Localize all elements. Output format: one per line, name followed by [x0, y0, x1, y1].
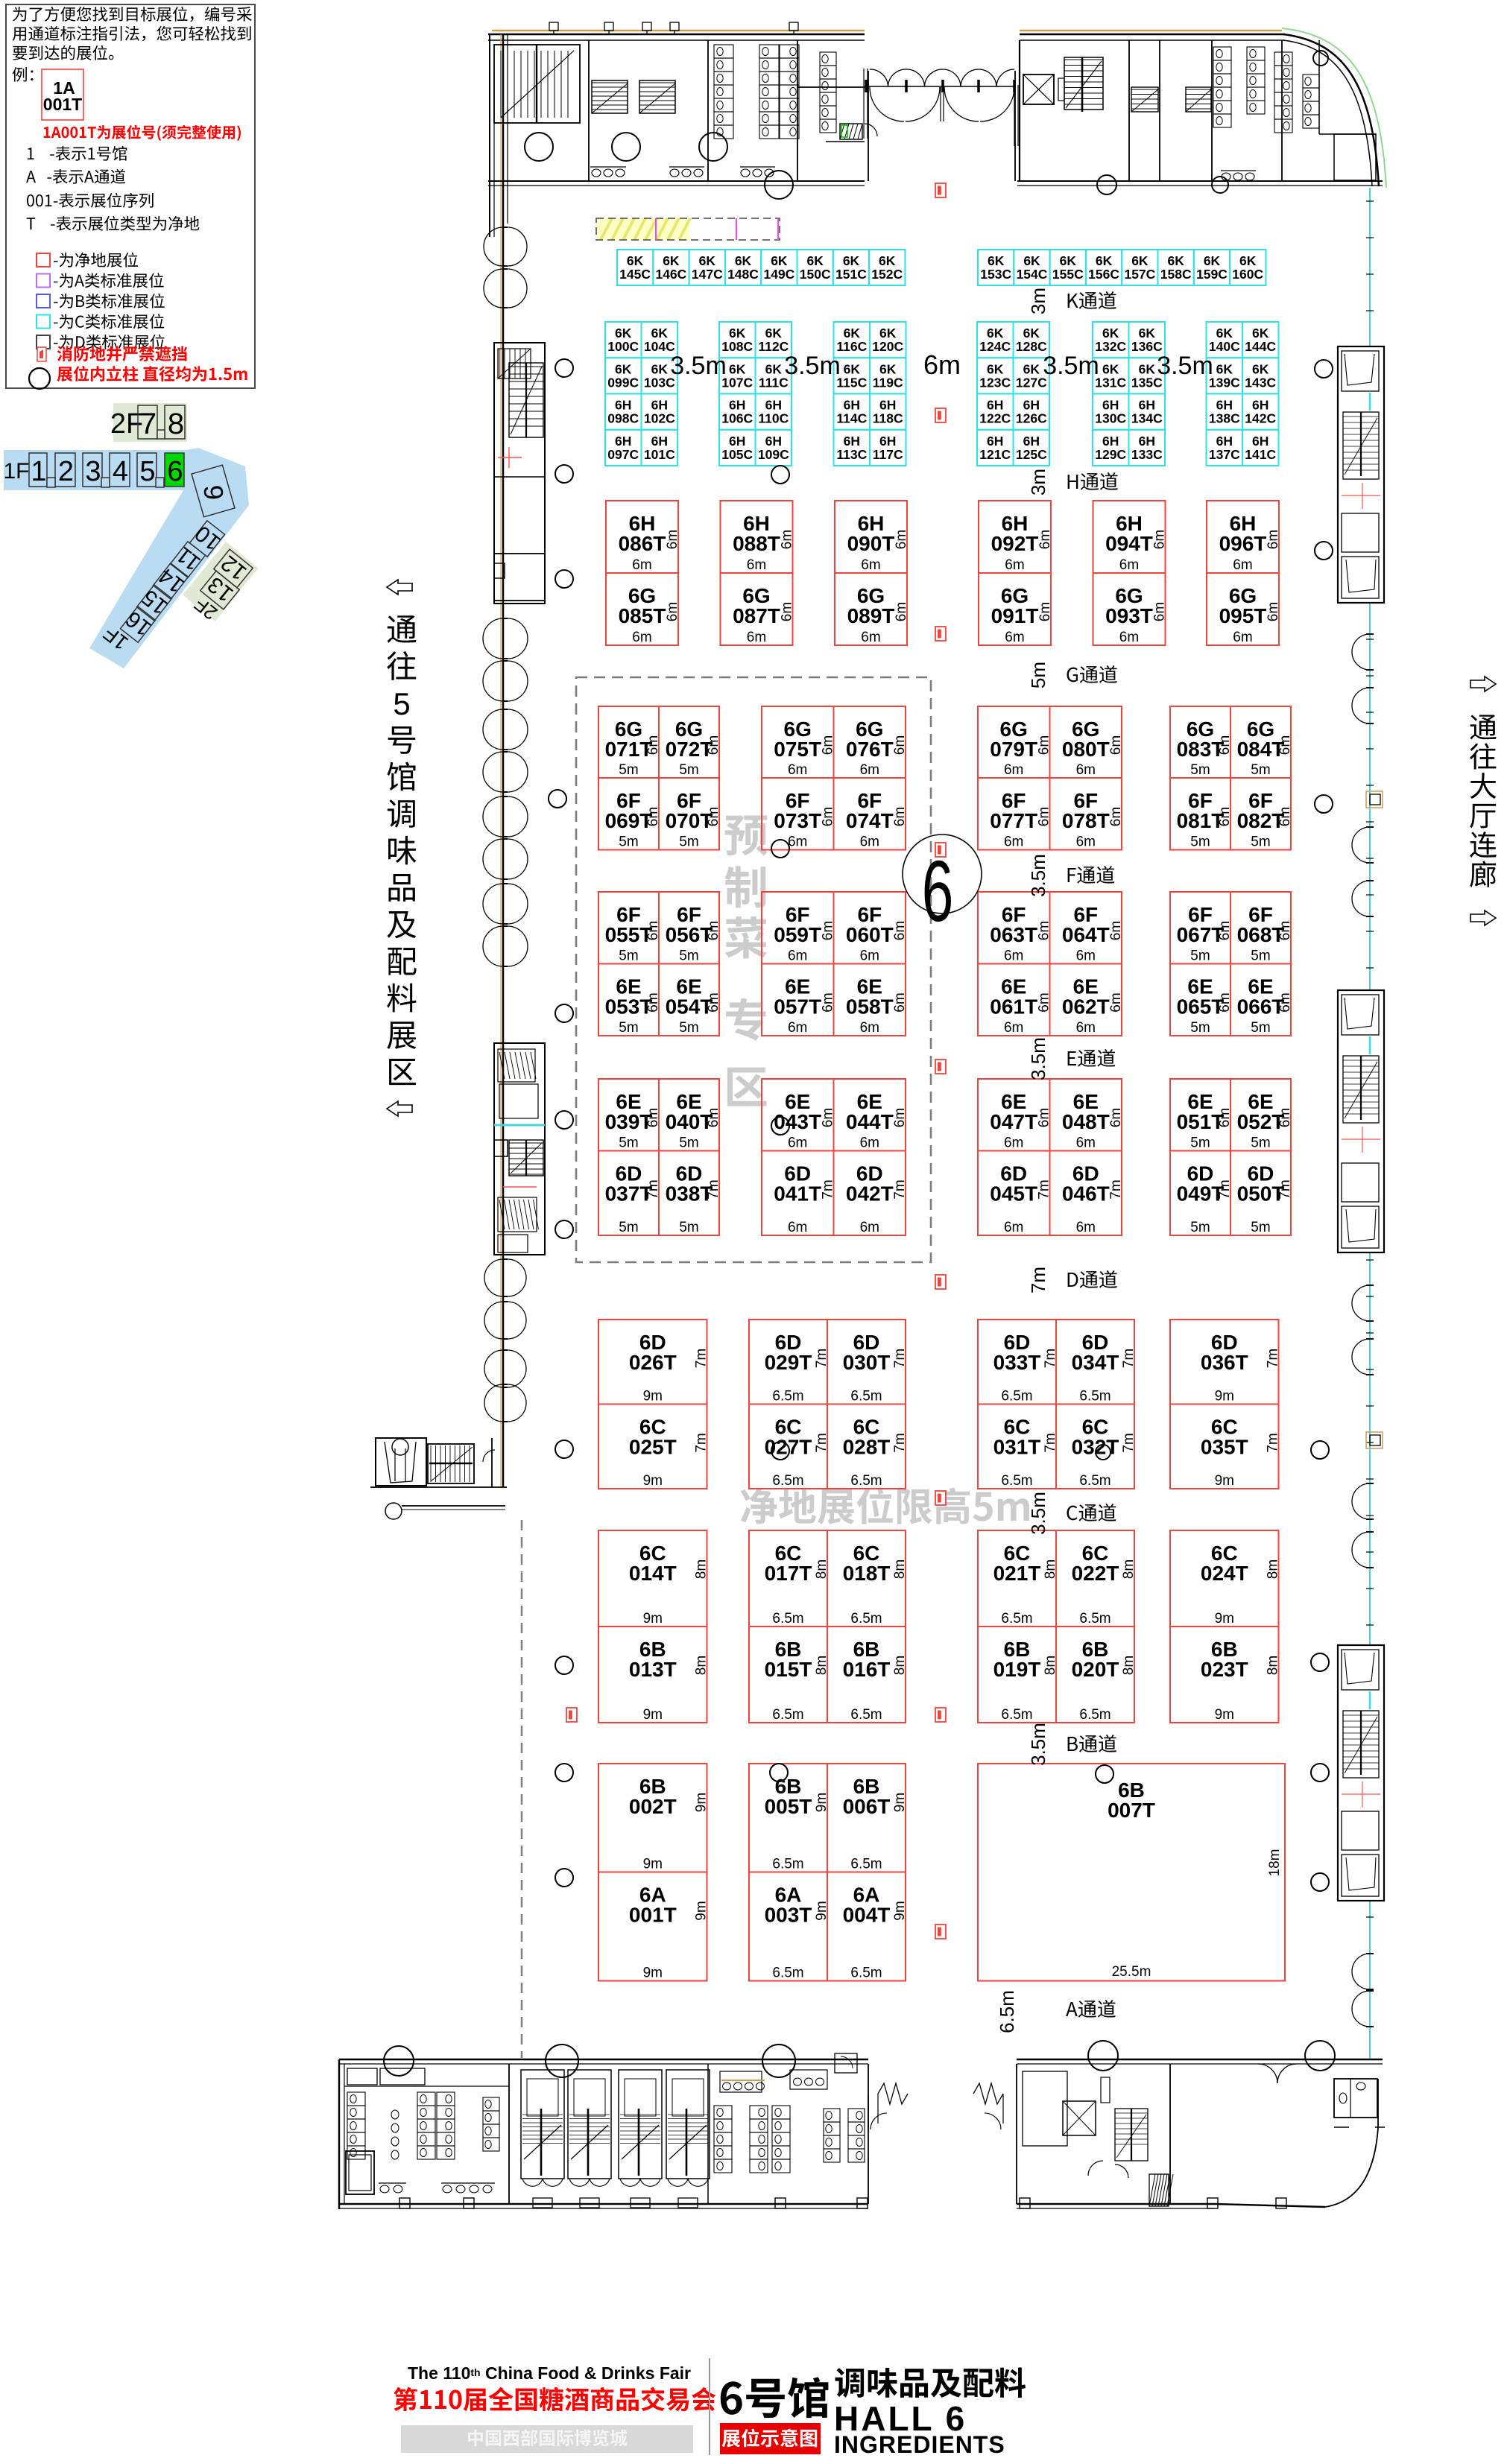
svg-text:092T: 092T	[991, 532, 1039, 555]
svg-text:9m: 9m	[643, 1707, 663, 1723]
svg-text:090T: 090T	[847, 532, 895, 555]
svg-text:6H: 6H	[729, 398, 745, 413]
svg-text:119C: 119C	[873, 375, 903, 390]
svg-text:1F: 1F	[3, 459, 29, 484]
svg-text:102C: 102C	[644, 411, 675, 426]
svg-text:The 110th China Food & Drinks: The 110th China Food & Drinks Fair	[408, 2363, 691, 2383]
svg-text:6m: 6m	[1119, 557, 1139, 573]
svg-text:9: 9	[198, 484, 230, 501]
svg-text:132C: 132C	[1095, 339, 1126, 354]
svg-text:5m: 5m	[679, 948, 698, 964]
svg-text:6m: 6m	[892, 992, 908, 1012]
svg-text:5m: 5m	[1190, 1220, 1210, 1235]
svg-text:5m: 5m	[1251, 762, 1270, 778]
svg-text:6m: 6m	[1004, 1136, 1023, 1151]
svg-text:6m: 6m	[1119, 630, 1139, 645]
svg-text:6K: 6K	[807, 253, 824, 268]
svg-text:6H: 6H	[879, 434, 896, 449]
svg-text:5m: 5m	[679, 1136, 698, 1151]
svg-text:079T: 079T	[990, 738, 1037, 761]
svg-text:7m: 7m	[1277, 1179, 1293, 1199]
svg-text:6K: 6K	[1252, 326, 1269, 341]
svg-text:5m: 5m	[1251, 948, 1270, 964]
svg-text:3.5m: 3.5m	[1027, 1492, 1049, 1535]
svg-text:6.5m: 6.5m	[772, 1707, 803, 1723]
svg-text:7m: 7m	[1266, 1433, 1281, 1452]
svg-text:6m: 6m	[1037, 530, 1053, 549]
svg-text:149C: 149C	[763, 267, 794, 282]
svg-text:116C: 116C	[836, 339, 867, 354]
svg-text:9m: 9m	[694, 1901, 710, 1920]
svg-text:6m: 6m	[892, 1108, 908, 1127]
svg-text:6K: 6K	[844, 361, 861, 376]
svg-text:6H: 6H	[844, 434, 860, 449]
svg-text:5m: 5m	[679, 762, 698, 778]
svg-text:6m: 6m	[1233, 557, 1252, 573]
svg-text:6m: 6m	[1152, 602, 1168, 621]
svg-text:6H: 6H	[987, 398, 1003, 413]
svg-text:125C: 125C	[1016, 447, 1047, 462]
svg-text:6m: 6m	[780, 530, 795, 549]
svg-text:6m: 6m	[665, 602, 680, 621]
svg-text:145C: 145C	[619, 267, 651, 282]
svg-text:6m: 6m	[788, 1136, 807, 1151]
svg-text:6H: 6H	[1252, 398, 1269, 413]
svg-text:7m: 7m	[892, 1179, 908, 1199]
svg-text:6K: 6K	[1023, 361, 1040, 376]
svg-text:036T: 036T	[1201, 1351, 1248, 1374]
svg-text:086T: 086T	[619, 532, 666, 555]
svg-text:002T: 002T	[629, 1795, 677, 1818]
svg-text:063T: 063T	[990, 923, 1037, 946]
svg-text:5m: 5m	[1190, 834, 1210, 850]
svg-text:156C: 156C	[1088, 267, 1119, 282]
svg-text:3.5m: 3.5m	[784, 352, 841, 380]
svg-text:6m: 6m	[860, 1136, 879, 1151]
svg-text:140C: 140C	[1209, 339, 1240, 354]
svg-text:9m: 9m	[643, 1389, 663, 1404]
svg-text:6.5m: 6.5m	[850, 1966, 882, 1981]
svg-text:6H: 6H	[1139, 434, 1155, 449]
svg-text:18m: 18m	[1267, 1849, 1283, 1877]
svg-text:8m: 8m	[1266, 1559, 1281, 1579]
svg-text:5m: 5m	[1251, 834, 1270, 850]
svg-text:6.5m: 6.5m	[1079, 1389, 1110, 1404]
svg-text:2: 2	[58, 456, 74, 487]
svg-text:6K: 6K	[615, 361, 632, 376]
svg-text:6.5m: 6.5m	[850, 1389, 882, 1404]
svg-text:5m: 5m	[1027, 662, 1049, 688]
svg-text:6m: 6m	[1004, 948, 1023, 964]
svg-text:6m: 6m	[706, 1108, 721, 1127]
svg-text:6m: 6m	[1108, 992, 1124, 1012]
svg-text:087T: 087T	[733, 604, 780, 627]
svg-text:6.5m: 6.5m	[1001, 1389, 1032, 1404]
svg-text:6m: 6m	[788, 948, 807, 964]
svg-text:6m: 6m	[1277, 921, 1293, 940]
svg-text:6m: 6m	[861, 557, 880, 573]
svg-text:3.5m: 3.5m	[1027, 1723, 1049, 1766]
svg-text:8m: 8m	[892, 1656, 908, 1675]
svg-text:100C: 100C	[607, 339, 639, 354]
svg-text:026T: 026T	[629, 1351, 677, 1374]
svg-text:031T: 031T	[993, 1436, 1041, 1459]
svg-text:006T: 006T	[843, 1795, 891, 1818]
svg-text:6m: 6m	[1152, 530, 1168, 549]
svg-text:139C: 139C	[1209, 375, 1240, 390]
svg-text:9m: 9m	[643, 1857, 663, 1872]
svg-text:158C: 158C	[1160, 267, 1192, 282]
svg-text:6K: 6K	[729, 361, 746, 376]
svg-text:076T: 076T	[846, 738, 894, 761]
svg-text:134C: 134C	[1131, 411, 1163, 426]
svg-text:6K: 6K	[1204, 253, 1221, 268]
svg-text:7m: 7m	[1027, 1267, 1049, 1293]
svg-text:6K: 6K	[771, 253, 788, 268]
svg-text:033T: 033T	[993, 1351, 1041, 1374]
svg-text:9m: 9m	[1215, 1473, 1234, 1489]
svg-text:046T: 046T	[1062, 1182, 1110, 1206]
svg-text:6H: 6H	[765, 398, 782, 413]
svg-text:6H: 6H	[1023, 434, 1040, 449]
svg-text:6H: 6H	[651, 434, 668, 449]
svg-text:098C: 098C	[607, 411, 639, 426]
svg-text:142C: 142C	[1245, 411, 1276, 426]
svg-text:3.5m: 3.5m	[1157, 352, 1213, 380]
svg-text:058T: 058T	[846, 995, 894, 1019]
svg-text:129C: 129C	[1095, 447, 1126, 462]
svg-text:126C: 126C	[1016, 411, 1047, 426]
svg-text:018T: 018T	[843, 1562, 891, 1585]
svg-text:6H: 6H	[765, 434, 782, 449]
svg-text:5m: 5m	[619, 762, 638, 778]
svg-text:6H: 6H	[1023, 398, 1040, 413]
svg-text:159C: 159C	[1196, 267, 1228, 282]
svg-text:007T: 007T	[1108, 1799, 1155, 1822]
svg-text:6m: 6m	[1277, 1108, 1293, 1127]
svg-text:5m: 5m	[619, 834, 638, 850]
svg-text:044T: 044T	[846, 1110, 894, 1133]
svg-text:6m: 6m	[1266, 602, 1281, 621]
svg-text:041T: 041T	[774, 1182, 821, 1206]
svg-text:3.5m: 3.5m	[1027, 854, 1049, 897]
svg-text:7m: 7m	[1108, 1179, 1124, 1199]
svg-text:097C: 097C	[607, 447, 639, 462]
svg-text:9m: 9m	[1215, 1389, 1234, 1404]
svg-text:6m: 6m	[1076, 1136, 1096, 1151]
svg-text:120C: 120C	[872, 339, 903, 354]
svg-text:6m: 6m	[788, 1220, 807, 1235]
svg-text:6H: 6H	[1139, 398, 1155, 413]
svg-text:137C: 137C	[1209, 447, 1240, 462]
svg-text:6m: 6m	[923, 349, 961, 380]
svg-text:062T: 062T	[1062, 995, 1110, 1019]
svg-text:6m: 6m	[860, 948, 879, 964]
svg-text:5m: 5m	[619, 948, 638, 964]
svg-text:6K: 6K	[1216, 326, 1233, 341]
svg-text:023T: 023T	[1201, 1658, 1248, 1681]
svg-text:6H: 6H	[1216, 398, 1233, 413]
svg-text:8m: 8m	[1121, 1656, 1137, 1675]
svg-text:6m: 6m	[706, 992, 721, 1012]
svg-text:032T: 032T	[1072, 1436, 1119, 1459]
svg-text:6m: 6m	[1108, 1108, 1124, 1127]
svg-text:109C: 109C	[758, 447, 789, 462]
svg-text:6K: 6K	[735, 253, 752, 268]
svg-text:133C: 133C	[1131, 447, 1163, 462]
svg-text:093T: 093T	[1105, 604, 1153, 627]
svg-text:148C: 148C	[727, 267, 759, 282]
svg-text:6m: 6m	[1233, 630, 1252, 645]
svg-text:091T: 091T	[991, 604, 1039, 627]
svg-text:001T: 001T	[629, 1904, 677, 1927]
svg-text:6K: 6K	[1023, 253, 1040, 268]
svg-text:034T: 034T	[1072, 1351, 1119, 1374]
svg-text:6.5m: 6.5m	[1001, 1707, 1032, 1723]
svg-text:9m: 9m	[1215, 1611, 1234, 1627]
svg-text:6K: 6K	[1060, 253, 1077, 268]
svg-text:6.5m: 6.5m	[850, 1707, 882, 1723]
svg-text:089T: 089T	[847, 604, 895, 627]
svg-text:6m: 6m	[1108, 807, 1124, 826]
svg-text:6m: 6m	[632, 630, 651, 645]
svg-text:016T: 016T	[843, 1658, 891, 1681]
svg-text:6K: 6K	[988, 253, 1005, 268]
svg-text:088T: 088T	[733, 532, 780, 555]
svg-text:6K: 6K	[1139, 326, 1156, 341]
svg-text:5m: 5m	[619, 1220, 638, 1235]
svg-text:003T: 003T	[765, 1904, 812, 1927]
svg-text:3m: 3m	[1027, 288, 1049, 314]
svg-text:073T: 073T	[774, 809, 821, 832]
svg-text:6.5m: 6.5m	[1079, 1707, 1110, 1723]
svg-text:6m: 6m	[706, 921, 721, 940]
svg-text:013T: 013T	[629, 1658, 677, 1681]
svg-text:130C: 130C	[1095, 411, 1126, 426]
svg-text:6K: 6K	[663, 253, 680, 268]
svg-text:131C: 131C	[1095, 375, 1126, 390]
svg-text:6m: 6m	[1004, 1220, 1023, 1235]
svg-text:6K: 6K	[1252, 361, 1269, 376]
svg-text:057T: 057T	[774, 995, 821, 1019]
svg-text:9m: 9m	[643, 1966, 663, 1981]
svg-text:115C: 115C	[836, 375, 867, 390]
svg-text:064T: 064T	[1062, 923, 1110, 946]
svg-text:6m: 6m	[894, 530, 909, 549]
svg-text:6K: 6K	[615, 326, 632, 341]
svg-text:5m: 5m	[679, 1020, 698, 1036]
svg-text:6K: 6K	[987, 326, 1004, 341]
svg-text:6m: 6m	[1108, 735, 1124, 755]
svg-text:146C: 146C	[655, 267, 686, 282]
svg-text:094T: 094T	[1105, 532, 1153, 555]
svg-text:114C: 114C	[836, 411, 867, 426]
svg-text:7m: 7m	[694, 1349, 710, 1368]
svg-text:6m: 6m	[706, 735, 721, 755]
svg-text:5m: 5m	[1251, 1020, 1270, 1036]
svg-text:6m: 6m	[1037, 602, 1053, 621]
svg-text:074T: 074T	[846, 809, 894, 832]
svg-text:6: 6	[922, 843, 954, 940]
svg-text:6.5m: 6.5m	[850, 1473, 882, 1489]
svg-text:124C: 124C	[979, 339, 1011, 354]
svg-text:138C: 138C	[1209, 411, 1240, 426]
svg-text:6K: 6K	[1102, 361, 1119, 376]
svg-text:6m: 6m	[1076, 762, 1096, 778]
svg-text:6m: 6m	[860, 762, 879, 778]
svg-text:117C: 117C	[873, 447, 903, 462]
svg-text:123C: 123C	[979, 375, 1011, 390]
svg-text:004T: 004T	[843, 1904, 891, 1927]
svg-text:5m: 5m	[1251, 1220, 1270, 1235]
svg-text:151C: 151C	[835, 267, 867, 282]
svg-text:6K: 6K	[844, 326, 861, 341]
svg-text:150C: 150C	[800, 267, 831, 282]
svg-text:6m: 6m	[788, 834, 807, 850]
svg-text:5m: 5m	[679, 1220, 698, 1235]
svg-text:6K: 6K	[651, 361, 669, 376]
svg-text:9m: 9m	[694, 1793, 710, 1812]
svg-text:035T: 035T	[1201, 1436, 1248, 1459]
svg-text:7m: 7m	[1266, 1349, 1281, 1368]
svg-text:059T: 059T	[774, 923, 821, 946]
svg-text:6H: 6H	[615, 434, 631, 449]
svg-text:080T: 080T	[1062, 738, 1110, 761]
svg-text:6m: 6m	[860, 834, 879, 850]
svg-text:154C: 154C	[1017, 267, 1048, 282]
svg-text:157C: 157C	[1124, 267, 1155, 282]
svg-text:6m: 6m	[788, 762, 807, 778]
svg-text:028T: 028T	[843, 1436, 891, 1459]
svg-text:6m: 6m	[860, 1220, 879, 1235]
svg-text:6H: 6H	[615, 398, 631, 413]
svg-text:6K: 6K	[1096, 253, 1113, 268]
svg-text:1: 1	[31, 456, 46, 487]
svg-text:095T: 095T	[1219, 604, 1267, 627]
svg-text:6m: 6m	[747, 630, 766, 645]
svg-text:7m: 7m	[1121, 1349, 1137, 1368]
svg-text:6m: 6m	[788, 1020, 807, 1036]
svg-text:6m: 6m	[892, 807, 908, 826]
svg-text:3.5m: 3.5m	[1043, 352, 1099, 380]
svg-text:6K: 6K	[1131, 253, 1149, 268]
svg-text:6H: 6H	[1102, 434, 1119, 449]
svg-text:6.5m: 6.5m	[772, 1611, 803, 1627]
svg-text:6m: 6m	[892, 735, 908, 755]
svg-text:6m: 6m	[860, 1020, 879, 1036]
svg-text:5m: 5m	[1190, 762, 1210, 778]
svg-text:6K: 6K	[1216, 361, 1233, 376]
svg-text:6.5m: 6.5m	[1079, 1611, 1110, 1627]
svg-text:7m: 7m	[694, 1433, 710, 1452]
svg-text:8m: 8m	[694, 1656, 710, 1675]
svg-text:042T: 042T	[846, 1182, 894, 1206]
svg-text:6.5m: 6.5m	[772, 1473, 803, 1489]
svg-text:014T: 014T	[629, 1562, 677, 1585]
svg-text:6K: 6K	[843, 253, 860, 268]
svg-text:9m: 9m	[643, 1473, 663, 1489]
svg-text:144C: 144C	[1245, 339, 1276, 354]
svg-text:153C: 153C	[980, 267, 1011, 282]
svg-text:8: 8	[168, 408, 184, 440]
svg-text:6H: 6H	[1252, 434, 1269, 449]
svg-text:6K: 6K	[879, 253, 896, 268]
svg-text:143C: 143C	[1245, 375, 1276, 390]
svg-text:160C: 160C	[1232, 267, 1263, 282]
svg-text:6K: 6K	[1023, 326, 1040, 341]
svg-text:5m: 5m	[1190, 948, 1210, 964]
svg-text:017T: 017T	[765, 1562, 812, 1585]
svg-text:5m: 5m	[619, 1136, 638, 1151]
svg-text:3.5m: 3.5m	[670, 352, 727, 380]
svg-text:021T: 021T	[993, 1562, 1041, 1585]
svg-text:6m: 6m	[861, 630, 880, 645]
svg-text:7m: 7m	[706, 1179, 721, 1199]
svg-text:7m: 7m	[892, 1433, 908, 1452]
svg-text:048T: 048T	[1062, 1110, 1110, 1133]
svg-text:030T: 030T	[843, 1351, 891, 1374]
svg-text:6H: 6H	[1216, 434, 1233, 449]
svg-text:075T: 075T	[774, 738, 821, 761]
svg-text:6H: 6H	[651, 398, 668, 413]
svg-text:4: 4	[113, 456, 128, 487]
svg-text:6m: 6m	[1005, 557, 1024, 573]
svg-text:6.5m: 6.5m	[772, 1389, 803, 1404]
svg-text:7m: 7m	[1121, 1433, 1137, 1452]
svg-text:6m: 6m	[1076, 1020, 1096, 1036]
svg-text:147C: 147C	[692, 267, 723, 282]
svg-text:110C: 110C	[758, 411, 789, 426]
svg-text:121C: 121C	[979, 447, 1011, 462]
svg-text:6K: 6K	[765, 326, 783, 341]
svg-text:6m: 6m	[706, 807, 721, 826]
svg-text:6K: 6K	[987, 361, 1004, 376]
svg-text:001T: 001T	[43, 95, 82, 114]
svg-text:6m: 6m	[894, 602, 909, 621]
svg-text:6m: 6m	[1005, 630, 1024, 645]
svg-text:8m: 8m	[694, 1559, 710, 1579]
svg-text:020T: 020T	[1072, 1658, 1119, 1681]
svg-text:5m: 5m	[619, 1020, 638, 1036]
svg-text:6K: 6K	[699, 253, 716, 268]
svg-text:099C: 099C	[607, 375, 639, 390]
svg-text:9m: 9m	[643, 1611, 663, 1627]
svg-text:6m: 6m	[632, 557, 651, 573]
svg-text:6K: 6K	[1168, 253, 1185, 268]
svg-text:043T: 043T	[774, 1110, 821, 1133]
svg-text:6.5m: 6.5m	[1001, 1611, 1032, 1627]
svg-text:6K: 6K	[651, 326, 669, 341]
svg-text:8m: 8m	[892, 1559, 908, 1579]
svg-text:101C: 101C	[644, 447, 675, 462]
svg-text:6.5m: 6.5m	[1001, 1473, 1032, 1489]
svg-text:6H: 6H	[1102, 398, 1119, 413]
svg-text:045T: 045T	[990, 1182, 1037, 1206]
svg-text:7m: 7m	[892, 1349, 908, 1368]
svg-text:061T: 061T	[990, 995, 1037, 1019]
svg-text:8m: 8m	[1121, 1559, 1137, 1579]
svg-text:022T: 022T	[1072, 1562, 1119, 1585]
svg-text:019T: 019T	[993, 1658, 1041, 1681]
svg-text:6m: 6m	[1076, 1220, 1096, 1235]
svg-text:025T: 025T	[629, 1436, 677, 1459]
svg-text:8m: 8m	[1266, 1656, 1281, 1675]
svg-text:6K: 6K	[879, 326, 897, 341]
svg-text:047T: 047T	[990, 1110, 1037, 1133]
svg-text:096T: 096T	[1219, 532, 1267, 555]
svg-text:6m: 6m	[1004, 762, 1023, 778]
svg-text:6m: 6m	[1277, 735, 1293, 755]
